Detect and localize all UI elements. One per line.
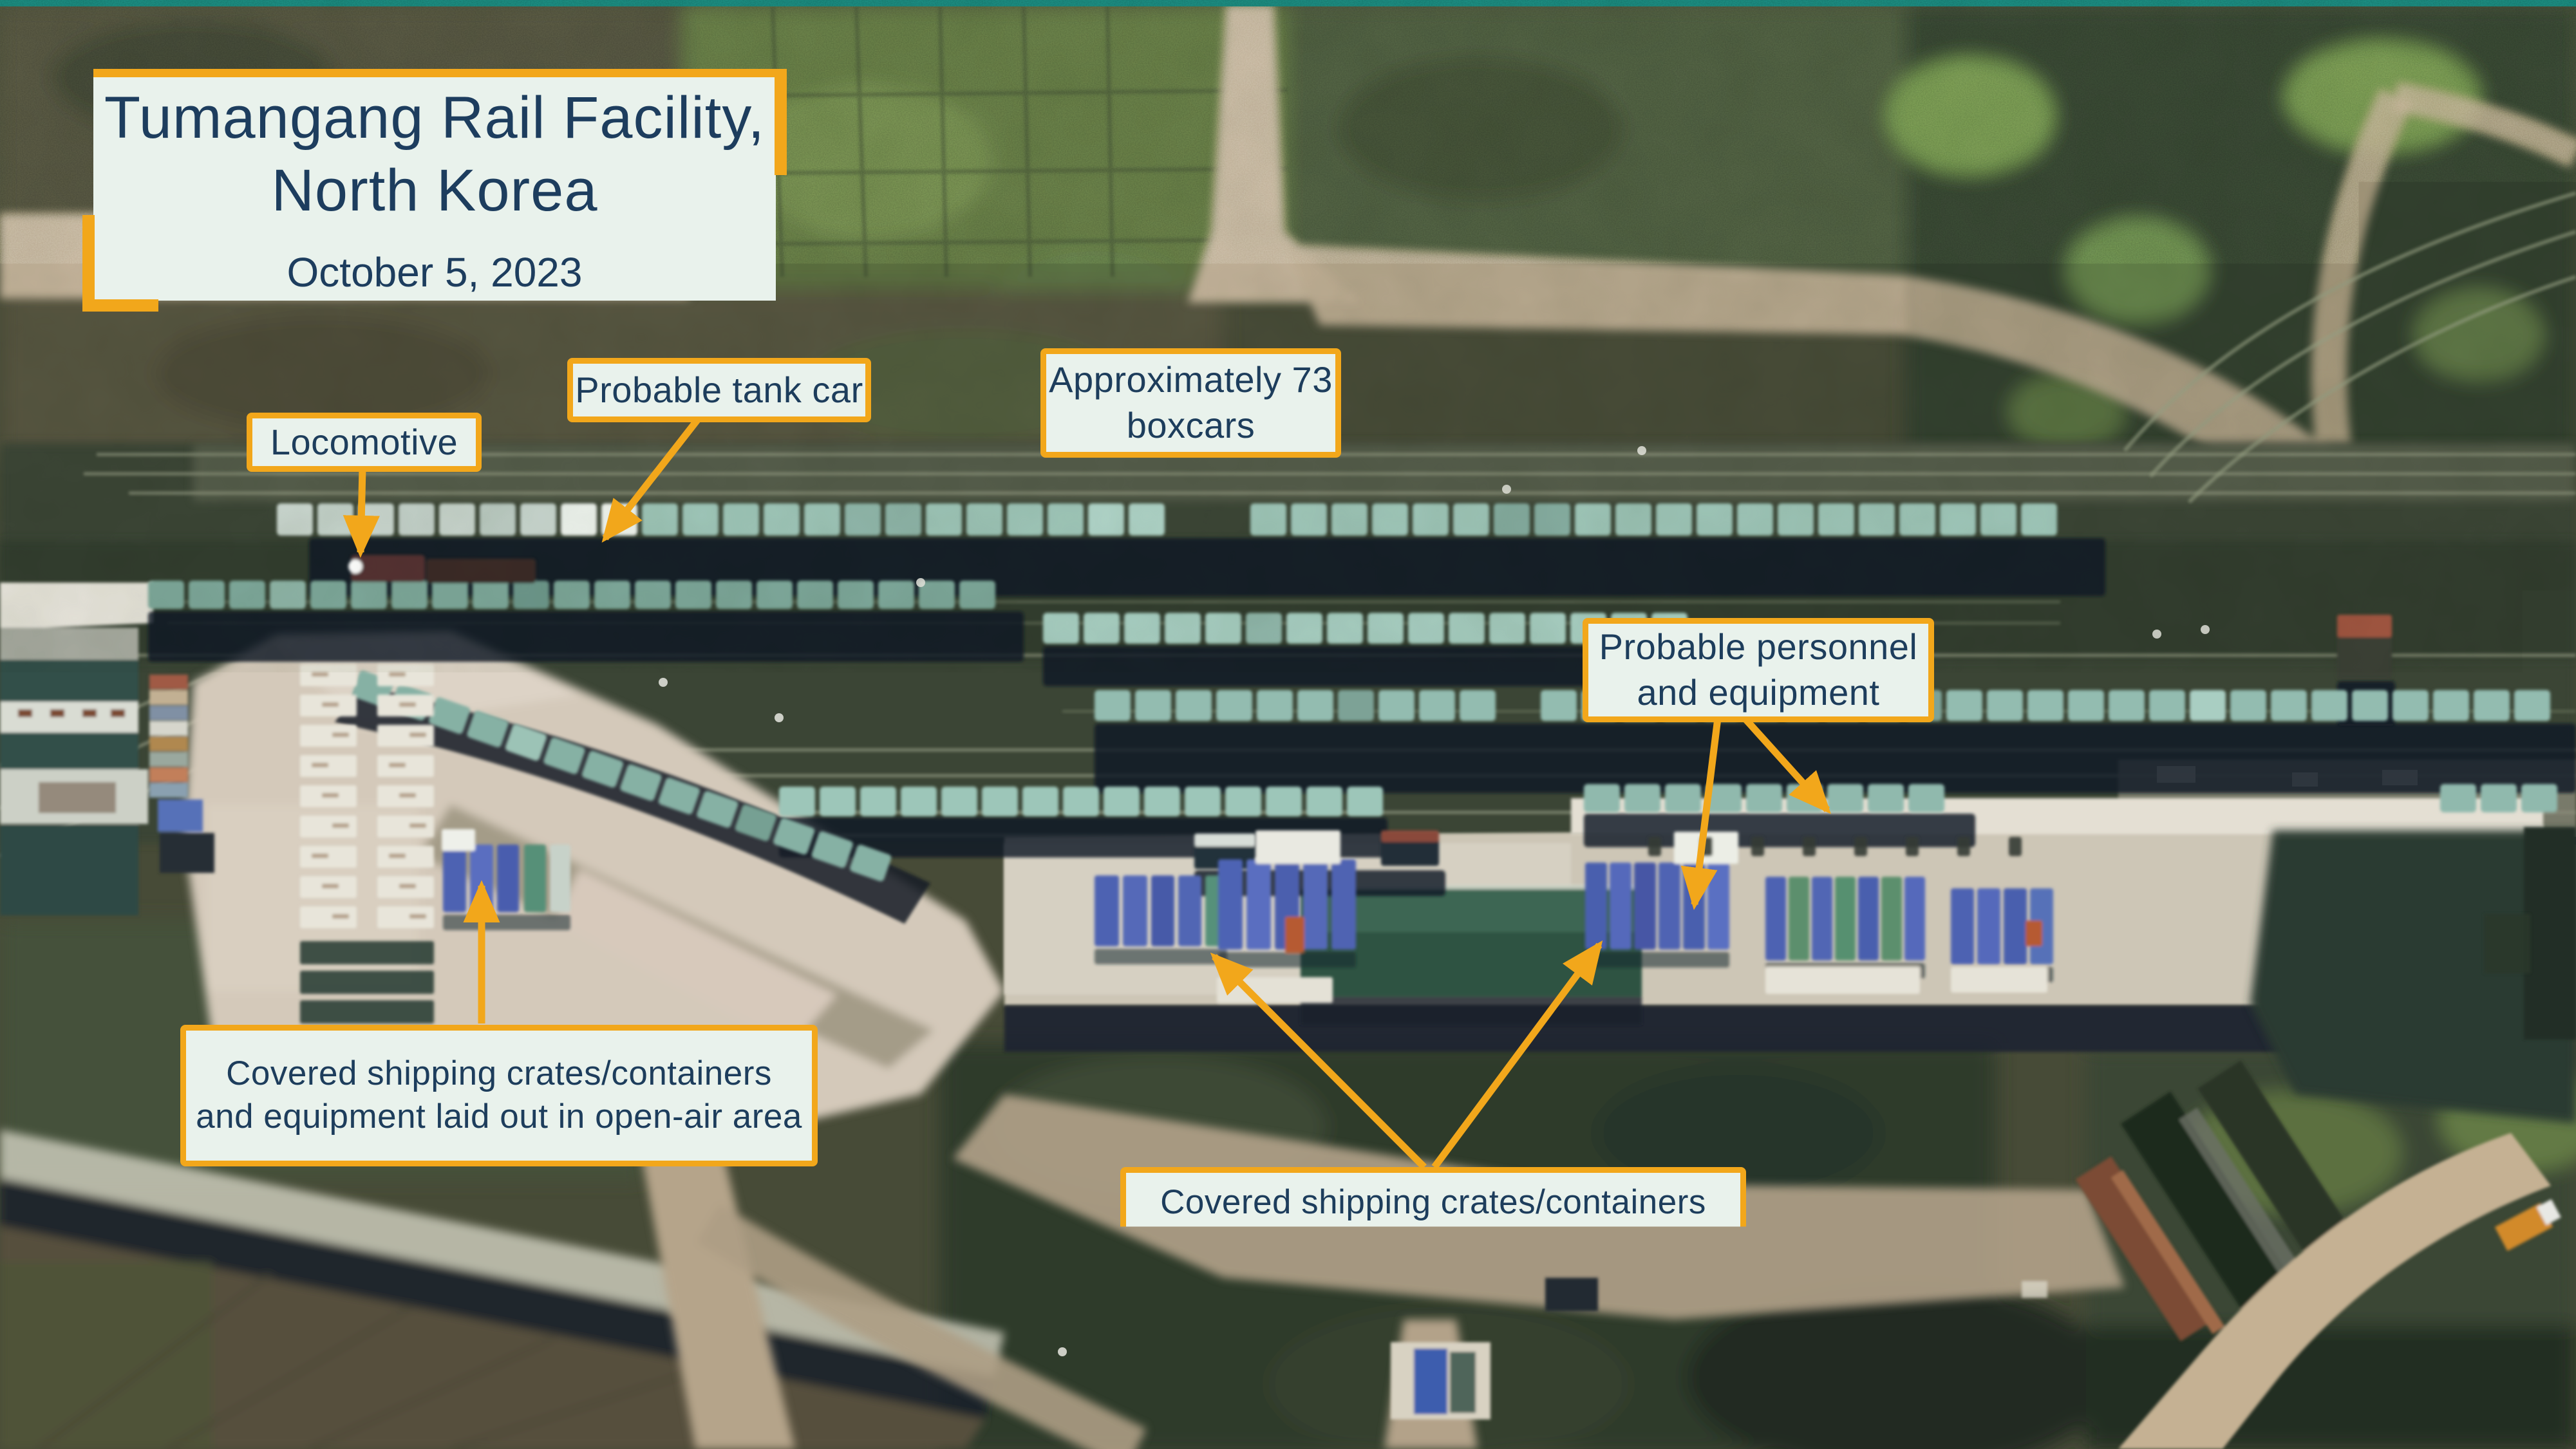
callout-covered-bottom: Covered shipping crates/containers and e… bbox=[1120, 1167, 1746, 1282]
compass-label-south: S bbox=[2387, 1314, 2408, 1350]
csis-wordmark: CSIS bbox=[1890, 1325, 2022, 1394]
title-card: Tumangang Rail Facility, North Korea Oct… bbox=[93, 69, 776, 301]
title-corner-top-right bbox=[775, 69, 787, 175]
callout-boxcars-line2: boxcars bbox=[1127, 403, 1255, 449]
compass-label-west: W bbox=[2471, 1282, 2502, 1318]
page-title-line1: Tumangang Rail Facility, bbox=[104, 82, 765, 154]
callout-boxcars: Approximately 73 boxcars bbox=[1040, 348, 1341, 458]
image-date: October 5, 2023 bbox=[287, 248, 583, 296]
compass-label-north: N bbox=[2507, 1370, 2530, 1407]
compass-rose-icon: N E S W bbox=[2376, 1278, 2541, 1443]
para-text: PARA bbox=[2271, 1338, 2375, 1381]
callout-personnel-line1: Probable personnel bbox=[1599, 624, 1918, 670]
callout-locomotive: Locomotive bbox=[247, 413, 482, 472]
callout-covered-left-line1: Covered shipping crates/containers bbox=[226, 1052, 772, 1096]
title-corner-bottom-left-v bbox=[82, 215, 95, 312]
beyond-parallel-globe-icon bbox=[2226, 1340, 2265, 1379]
title-corner-bottom-left-h bbox=[82, 299, 158, 312]
callout-boxcars-line1: Approximately 73 bbox=[1049, 357, 1333, 403]
callout-tank-car: Probable tank car bbox=[567, 358, 871, 422]
callout-covered-bottom-line1: Covered shipping crates/containers bbox=[1160, 1181, 1706, 1224]
callout-personnel-line2: and equipment bbox=[1637, 670, 1879, 716]
beyond-text: BEYOND bbox=[2059, 1338, 2220, 1381]
callout-locomotive-text: Locomotive bbox=[270, 420, 458, 465]
copyright-text: Copyright © 2023 by Planet bbox=[109, 1351, 583, 1394]
callout-covered-bottom-line2: and equipment laid out in open-air area bbox=[1130, 1224, 1736, 1267]
logo-divider bbox=[2039, 1332, 2042, 1387]
callout-covered-left-line2: and equipment laid out in open-air area bbox=[196, 1096, 802, 1139]
page-title-line2: North Korea bbox=[271, 154, 597, 227]
callout-personnel: Probable personnel and equipment bbox=[1583, 618, 1934, 722]
csis-beyond-parallel-logo: CSIS BEYOND PARA EL bbox=[1890, 1321, 2445, 1398]
annotated-satellite-graphic: Tumangang Rail Facility, North Korea Oct… bbox=[0, 0, 2576, 1449]
callout-covered-left: Covered shipping crates/containers and e… bbox=[180, 1025, 818, 1166]
callout-tank-car-text: Probable tank car bbox=[575, 368, 863, 413]
compass-label-east: E bbox=[2419, 1403, 2440, 1439]
